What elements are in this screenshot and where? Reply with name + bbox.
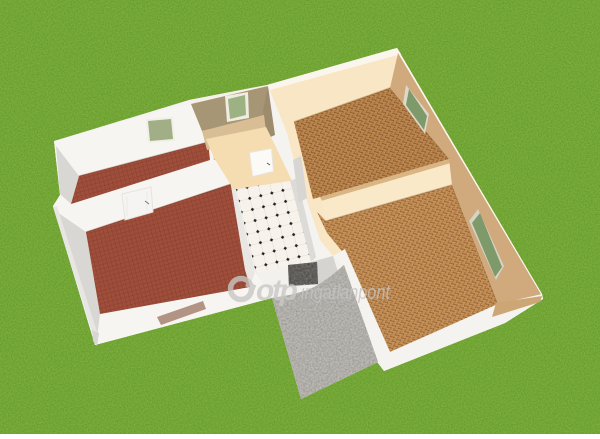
svg-text:otp: otp [256,274,298,307]
svg-text:ingatlanpont: ingatlanpont [301,282,391,304]
